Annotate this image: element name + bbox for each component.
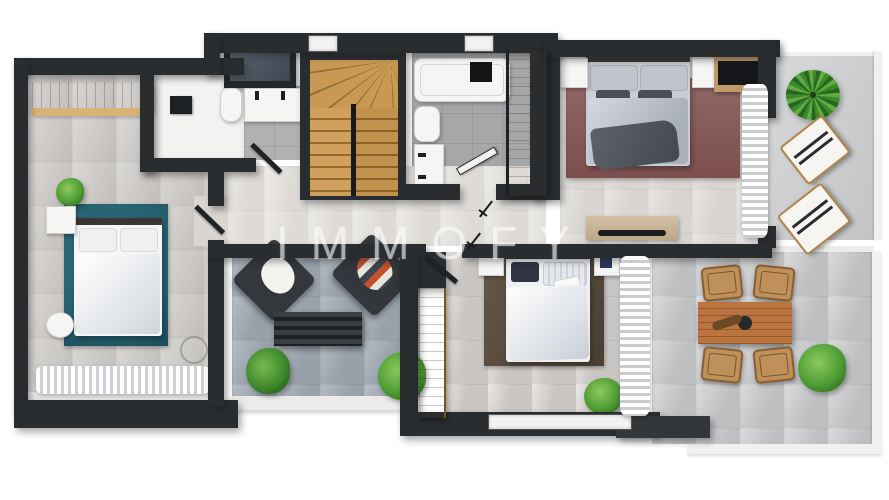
- tap: [255, 91, 259, 100]
- dining-chair: [752, 346, 795, 384]
- palm-plant: [786, 70, 840, 120]
- window: [308, 35, 338, 52]
- bed-headboard: [74, 218, 162, 225]
- window-bedroom-bottom: [488, 414, 632, 430]
- bed-left: [74, 218, 162, 336]
- shower-fixture: [170, 96, 192, 114]
- tv-flat: [598, 230, 666, 236]
- wall-bottom-left: [14, 400, 238, 428]
- dining-chair: [700, 264, 743, 302]
- wardrobe-entry: [506, 50, 547, 196]
- wall-bedroom-left-upper: [208, 168, 224, 206]
- wall-bathroom-bottom-a: [406, 184, 460, 200]
- tv-screen: [718, 61, 758, 85]
- bed-master: [586, 54, 690, 166]
- wall-step: [204, 33, 220, 75]
- plant: [798, 344, 846, 392]
- balcony-right-rail: [874, 52, 882, 240]
- wall-master-top: [544, 40, 780, 57]
- bed-pillow: [79, 228, 117, 252]
- terrace-right-rail-top: [772, 246, 874, 252]
- curtain-bedroom-bottom: [620, 256, 650, 416]
- watermark: IMMOFY: [276, 216, 592, 270]
- bed-pillow: [640, 65, 688, 91]
- ceiling-fan: [180, 336, 208, 364]
- dining-chair: [700, 346, 743, 384]
- terrace-right-rail: [872, 252, 882, 448]
- staircase-winder: [310, 60, 398, 108]
- bed-duvet: [76, 254, 160, 334]
- nightstand: [46, 206, 76, 234]
- wardrobe-left-front: [32, 108, 152, 116]
- terrace-right-rail-bottom: [688, 444, 882, 454]
- bed-duvet: [507, 285, 590, 362]
- staircase-flight-left: [310, 108, 352, 196]
- plant: [56, 178, 84, 206]
- tap: [418, 175, 426, 179]
- table-runner: [711, 314, 742, 332]
- plant: [584, 378, 622, 414]
- wall-bedroom-left-lower: [208, 240, 224, 406]
- sideboard: [586, 216, 678, 240]
- double-sink-vanity: [244, 88, 302, 122]
- plant: [246, 348, 290, 394]
- dining-table: [698, 302, 792, 344]
- side-table: [46, 312, 74, 338]
- curtain-master-balcony: [742, 84, 768, 238]
- toilet: [220, 88, 242, 122]
- wardrobe-bedroom-bottom: [418, 288, 446, 418]
- bed-pillow: [590, 65, 638, 91]
- nightstand: [560, 58, 588, 88]
- balcony-left-curtain: [36, 366, 210, 394]
- slatted-bench: [274, 312, 362, 346]
- staircase-stringer: [351, 104, 356, 196]
- wall-shower-bottom: [140, 158, 256, 172]
- nightstand-lamp: [600, 257, 612, 268]
- entry-door: [464, 35, 494, 52]
- wall-top-middle: [204, 33, 558, 53]
- dining-chair: [752, 264, 795, 302]
- wall-left: [14, 58, 28, 408]
- tap: [281, 91, 285, 100]
- tap: [418, 153, 426, 157]
- bath-tv-panel: [470, 62, 492, 82]
- bed-pillow: [120, 228, 158, 252]
- staircase-flight-right: [356, 108, 398, 196]
- floor-plan-render: IMMOFY: [0, 0, 889, 500]
- wall-shower-left: [140, 72, 154, 172]
- toilet: [414, 106, 440, 142]
- bathtub: [414, 58, 510, 102]
- wall-bedroom-bottom-left: [400, 252, 418, 420]
